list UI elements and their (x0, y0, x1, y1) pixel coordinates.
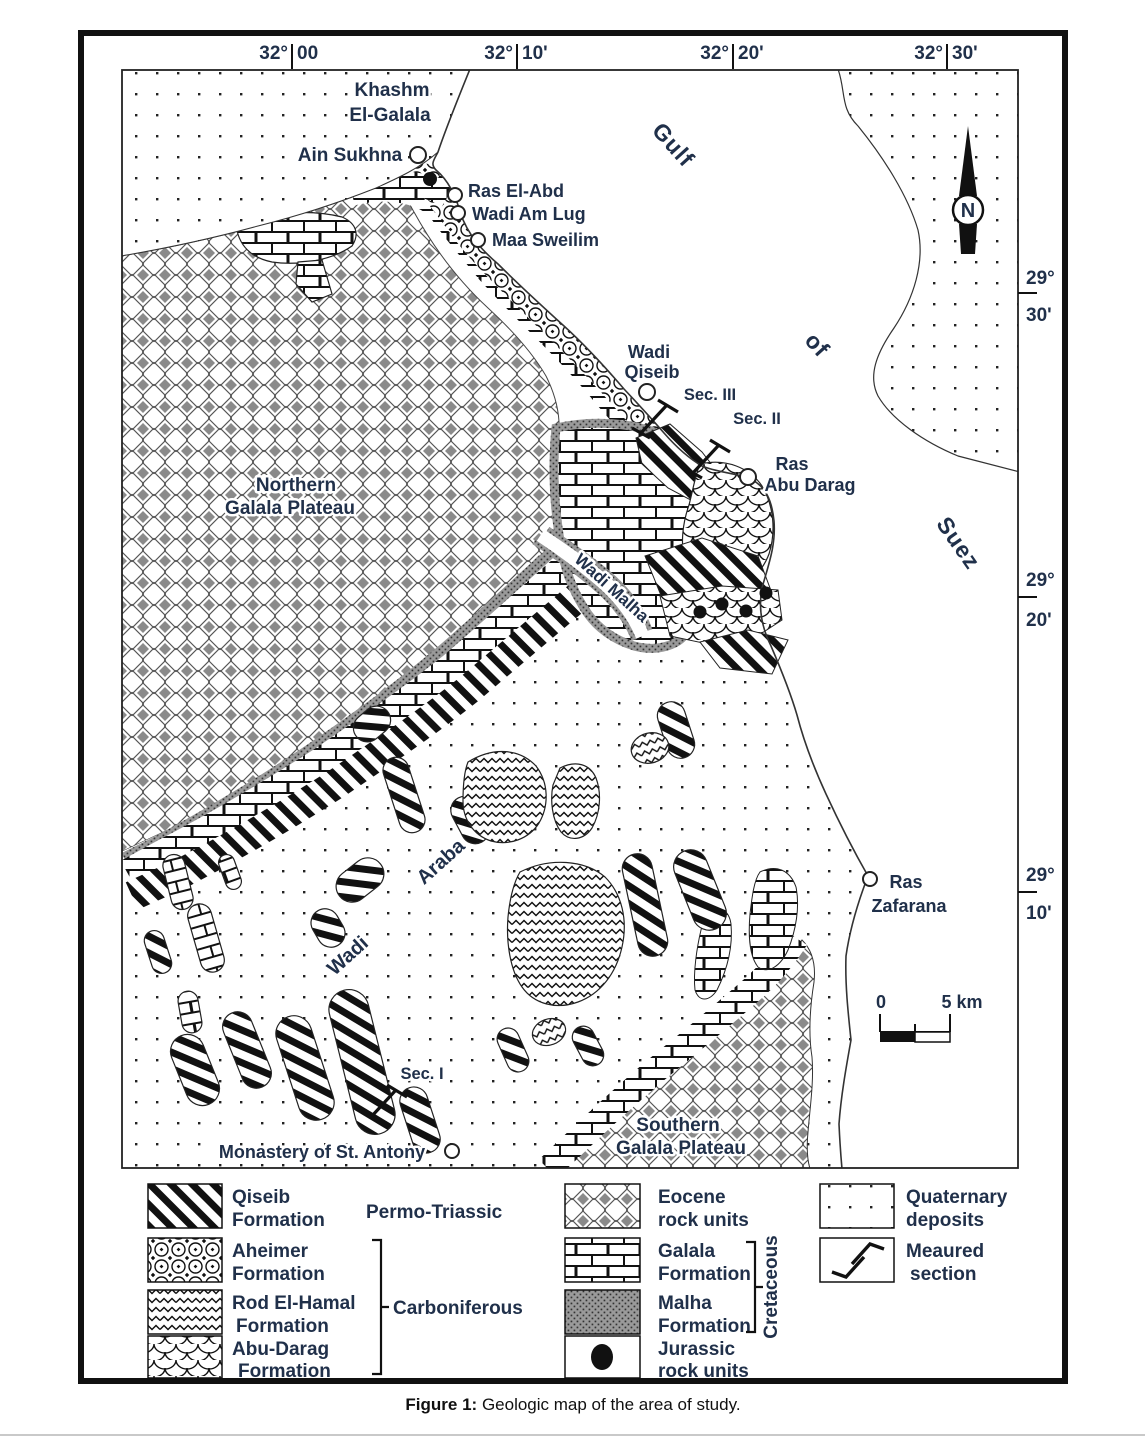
svg-text:Malha: Malha (658, 1293, 712, 1314)
legend-item-rod-el-hamal: Rod El-Hamal Formation (148, 1290, 356, 1337)
label-ras-zafarana: Ras (889, 872, 922, 892)
cretaceous-label: Cretaceous (761, 1235, 782, 1339)
label-ras-el-abd: Ras El-Abd (468, 181, 564, 201)
svg-text:Formation: Formation (232, 1264, 325, 1285)
label-sec-i: Sec. I (400, 1065, 443, 1083)
quaternary-swatch-icon (820, 1184, 894, 1228)
north-label: N (961, 200, 975, 222)
svg-text:Formation: Formation (232, 1210, 325, 1231)
svg-text:29°: 29° (1026, 570, 1055, 591)
rod-el-hamal-swatch-icon (148, 1290, 222, 1334)
svg-text:Meaured: Meaured (906, 1241, 984, 1262)
label-northern-galala: Northern (256, 475, 336, 496)
svg-text:30': 30' (952, 43, 978, 64)
label-monastery: Monastery of St. Antony (219, 1142, 425, 1162)
svg-text:29°: 29° (1026, 865, 1055, 886)
svg-text:deposits: deposits (906, 1210, 984, 1231)
label-ras-abu-darag: Ras (775, 454, 808, 474)
svg-text:El-Galala: El-Galala (349, 105, 431, 126)
eocene-swatch-icon (565, 1184, 640, 1228)
label-ain-sukhna: Ain Sukhna (298, 145, 403, 166)
svg-text:32°: 32° (484, 43, 513, 64)
svg-text:rock units: rock units (658, 1210, 749, 1231)
svg-text:00: 00 (297, 43, 318, 64)
svg-text:10': 10' (522, 43, 548, 64)
svg-text:section: section (910, 1264, 977, 1285)
svg-text:Abu Darag: Abu Darag (764, 475, 855, 495)
svg-text:Quaternary: Quaternary (906, 1187, 1008, 1208)
label-sec-ii: Sec. II (733, 410, 781, 428)
aheimer-swatch-icon (148, 1238, 222, 1282)
svg-text:20': 20' (738, 43, 764, 64)
svg-text:Formation: Formation (658, 1316, 751, 1337)
svg-text:Qiseib: Qiseib (232, 1187, 290, 1208)
svg-text:Galala Plateau: Galala Plateau (225, 498, 355, 519)
svg-text:Qiseib: Qiseib (624, 362, 679, 382)
galala-swatch-icon (565, 1238, 640, 1282)
abu-darag-swatch-icon (148, 1336, 222, 1378)
scale-five-km: 5 km (941, 992, 982, 1012)
label-southern-galala: Southern (636, 1115, 719, 1136)
legend-item-aheimer: Aheimer Formation (148, 1238, 325, 1285)
svg-text:Formation: Formation (658, 1264, 751, 1285)
label-wadi-am-lug: Wadi Am Lug (472, 204, 586, 224)
svg-text:Jurassic: Jurassic (658, 1339, 736, 1360)
label-sec-iii: Sec. III (684, 386, 736, 404)
svg-text:Galala: Galala (658, 1241, 715, 1262)
qiseib-swatch-icon (148, 1184, 222, 1228)
map-geology: N 0 5 km Khashm El-Galala Ain Sukhna Ras… (121, 69, 1020, 1169)
svg-text:Aheimer: Aheimer (232, 1241, 309, 1262)
svg-text:Formation: Formation (238, 1361, 331, 1382)
page-divider (0, 1434, 1145, 1436)
legend-item-abu-darag: Abu-Darag Formation (148, 1336, 331, 1382)
svg-text:20': 20' (1026, 610, 1052, 631)
svg-text:rock units: rock units (658, 1361, 749, 1382)
geologic-map-figure: N 0 5 km Khashm El-Galala Ain Sukhna Ras… (0, 0, 1145, 1441)
svg-text:32°: 32° (259, 43, 288, 64)
malha-swatch-icon (565, 1290, 640, 1334)
svg-text:Formation: Formation (236, 1316, 329, 1337)
scale-zero: 0 (876, 992, 886, 1012)
figure-page: { "colors": { "label": "#20304a", "ink":… (0, 0, 1145, 1441)
svg-text:32°: 32° (700, 43, 729, 64)
map-canvas: N 0 5 km Khashm El-Galala Ain Sukhna Ras… (121, 69, 1020, 1169)
svg-text:Zafarana: Zafarana (871, 896, 947, 916)
svg-text:Eocene: Eocene (658, 1187, 726, 1208)
permo-triassic-label: Permo-Triassic (366, 1202, 503, 1223)
svg-text:Galala Plateau: Galala Plateau (616, 1138, 746, 1159)
svg-text:32°: 32° (914, 43, 943, 64)
svg-text:Abu-Darag: Abu-Darag (232, 1339, 329, 1360)
carboniferous-label: Carboniferous (393, 1298, 523, 1319)
label-wadi-qiseib: Wadi (628, 342, 670, 362)
svg-text:Rod El-Hamal: Rod El-Hamal (232, 1293, 356, 1314)
label-khashm-el-galala: Khashm (355, 80, 430, 101)
svg-text:30': 30' (1026, 305, 1052, 326)
label-maa-sweilim: Maa Sweilim (492, 230, 599, 250)
legend-item-quaternary: Quaternary deposits (820, 1184, 1008, 1231)
figure-caption: Figure 1: Geologic map of the area of st… (405, 1395, 740, 1414)
svg-text:10': 10' (1026, 903, 1052, 924)
svg-text:29°: 29° (1026, 268, 1055, 289)
